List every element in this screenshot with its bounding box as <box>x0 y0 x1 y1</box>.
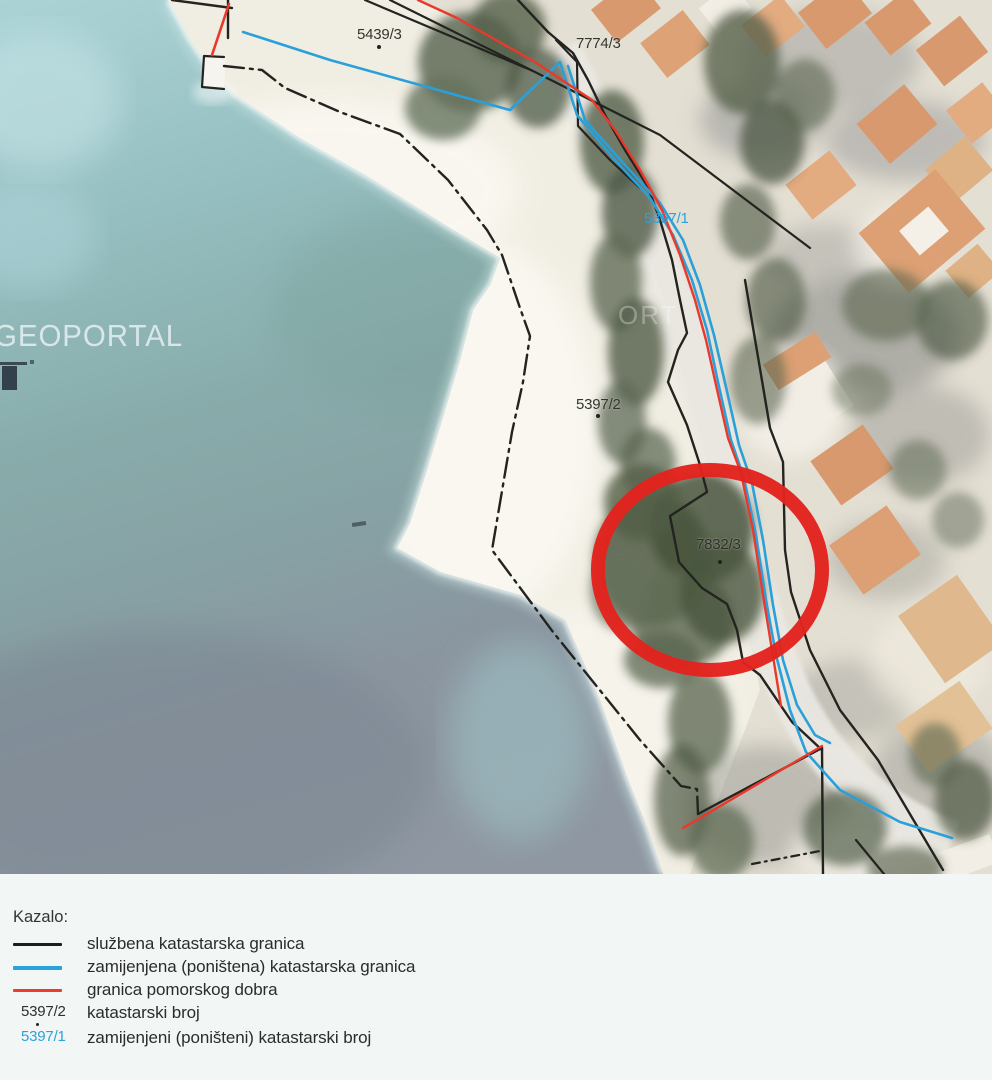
blue-line-swatch <box>13 966 62 970</box>
geoportal-watermark: GEOPORTAL <box>0 318 183 354</box>
legend-row-cadastral-number: 5397/2 katastarski broj <box>0 1003 992 1025</box>
scanned-cadastral-map-page: GEOPORTAL ORT 5439/3 7774/3 5397/1 5397/… <box>0 0 992 1080</box>
parcel-label-5397-2: 5397/2 <box>576 396 621 413</box>
watermark-logo <box>0 360 40 394</box>
parcel-point-5397-2 <box>596 414 600 418</box>
watermark-logo-square <box>30 360 34 364</box>
legend-row-replaced-cadastral-number: 5397/1 zamijenjeni (poništeni) katastars… <box>0 1028 992 1050</box>
legend-row-maritime-boundary: granica pomorskog dobra <box>0 980 992 1002</box>
aerial-map-image: GEOPORTAL ORT 5439/3 7774/3 5397/1 5397/… <box>0 0 992 874</box>
parcel-point-5439-3 <box>377 45 381 49</box>
watermark-logo-block <box>2 366 17 390</box>
legend-title: Kazalo: <box>13 908 68 927</box>
geoportal-watermark-fragment: ORT <box>618 300 678 331</box>
parcel-label-5397-1-annulled: 5397/1 <box>644 210 689 227</box>
legend-row-replaced-boundary: zamijenjena (poništena) katastarska gran… <box>0 957 992 979</box>
parcel-label-7832-3: 7832/3 <box>696 536 741 553</box>
cadastral-number-sample: 5397/2 <box>21 1003 66 1020</box>
map-canvas <box>0 0 992 874</box>
legend-label: zamijenjena (poništena) katastarska gran… <box>87 957 415 977</box>
legend-label: službena katastarska granica <box>87 934 304 954</box>
legend-label: granica pomorskog dobra <box>87 980 277 1000</box>
legend-label: zamijenjeni (poništeni) katastarski broj <box>87 1028 371 1048</box>
legend-label: katastarski broj <box>87 1003 200 1023</box>
legend: Kazalo: službena katastarska granica zam… <box>0 874 992 1080</box>
parcel-label-7774-3: 7774/3 <box>576 35 621 52</box>
parcel-label-5439-3: 5439/3 <box>357 26 402 43</box>
replaced-cadastral-number-sample: 5397/1 <box>21 1028 66 1045</box>
watermark-logo-bar <box>0 362 27 365</box>
black-line-swatch <box>13 943 62 946</box>
parcel-point-7832-3 <box>718 560 722 564</box>
legend-small-dot <box>36 1023 39 1026</box>
legend-row-official-boundary: službena katastarska granica <box>0 934 992 956</box>
red-line-swatch <box>13 989 62 992</box>
